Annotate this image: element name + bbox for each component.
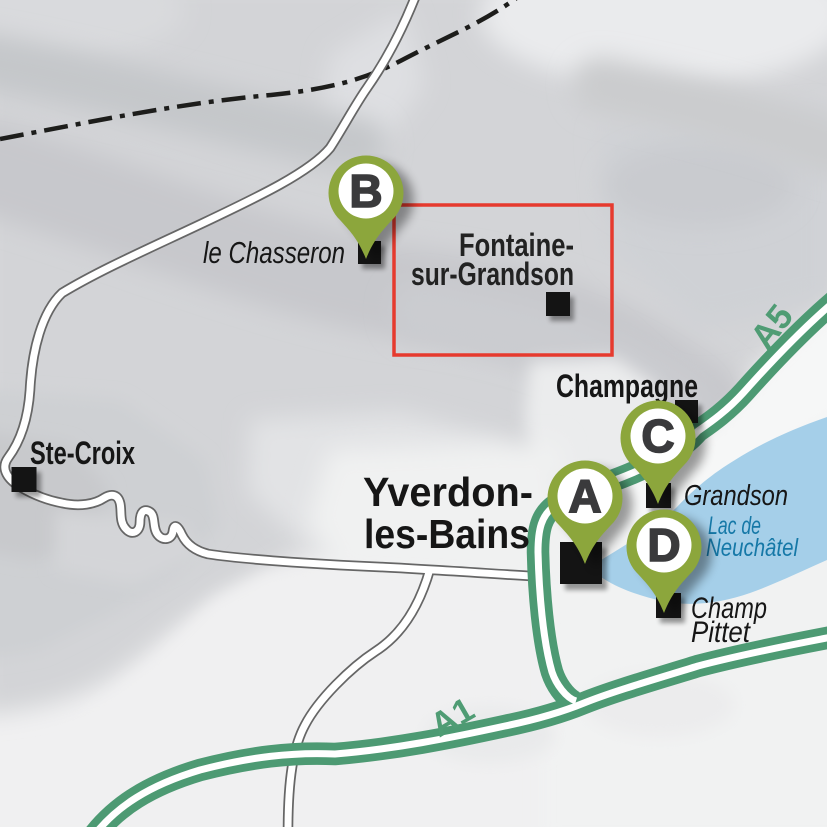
svg-text:les-Bains: les-Bains: [364, 511, 530, 557]
svg-text:A: A: [568, 470, 601, 522]
svg-text:Neuchâtel: Neuchâtel: [706, 534, 799, 562]
svg-text:Champagne: Champagne: [556, 368, 698, 404]
svg-text:sur-Grandson: sur-Grandson: [411, 256, 574, 292]
svg-text:Grandson: Grandson: [684, 480, 788, 512]
svg-text:Yverdon-: Yverdon-: [363, 469, 533, 515]
svg-text:Pittet: Pittet: [691, 616, 751, 649]
svg-text:B: B: [349, 165, 382, 217]
svg-text:le Chasseron: le Chasseron: [203, 235, 345, 270]
svg-text:C: C: [641, 410, 674, 462]
svg-text:Ste-Croix: Ste-Croix: [30, 435, 135, 471]
svg-text:D: D: [647, 519, 680, 571]
